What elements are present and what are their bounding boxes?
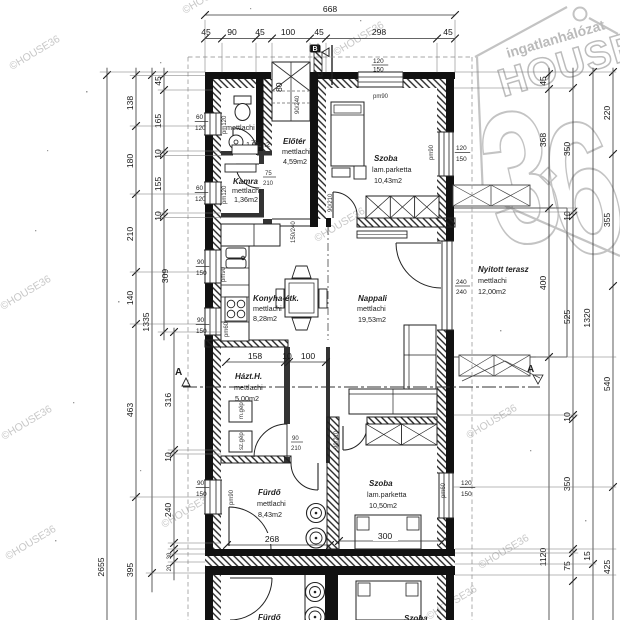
svg-text:150: 150 (196, 270, 207, 277)
svg-text:10: 10 (153, 149, 163, 159)
svg-text:mettlachi: mettlachi (253, 304, 282, 313)
svg-text:45: 45 (153, 76, 163, 86)
svg-text:350: 350 (562, 477, 572, 492)
svg-text:pm120: pm120 (222, 185, 228, 204)
svg-text:90: 90 (197, 480, 205, 487)
svg-text:mettlachi: mettlachi (257, 499, 286, 508)
svg-text:316: 316 (163, 393, 173, 408)
svg-text:lam.parketta: lam.parketta (372, 165, 412, 174)
svg-text:150: 150 (196, 491, 207, 498)
svg-text:210: 210 (263, 181, 274, 187)
svg-text:10,43m2: 10,43m2 (374, 176, 402, 185)
svg-text:Házt.H.: Házt.H. (235, 372, 262, 381)
svg-text:pm90: pm90 (229, 489, 235, 505)
svg-text:350: 350 (562, 142, 572, 157)
svg-text:20: 20 (167, 564, 173, 571)
svg-text:120: 120 (195, 196, 206, 203)
svg-text:525: 525 (562, 310, 572, 325)
svg-text:Előtér: Előtér (283, 137, 307, 146)
svg-text:15: 15 (582, 551, 592, 561)
svg-text:10: 10 (282, 351, 292, 361)
svg-text:90: 90 (227, 27, 237, 37)
svg-text:mettlachi: mettlachi (357, 304, 386, 313)
svg-text:45: 45 (443, 27, 453, 37)
svg-text:45: 45 (255, 27, 265, 37)
svg-text:8,43m2: 8,43m2 (258, 510, 282, 519)
svg-text:Fürdő: Fürdő (258, 613, 282, 620)
svg-text:pm90: pm90 (221, 266, 227, 282)
svg-text:Szoba: Szoba (404, 614, 428, 620)
svg-text:75: 75 (562, 561, 572, 571)
svg-text:mettlachi: mettlachi (234, 383, 263, 392)
svg-text:pm60: pm60 (441, 482, 447, 498)
svg-text:90: 90 (197, 317, 205, 324)
svg-text:10,50m2: 10,50m2 (369, 501, 397, 510)
svg-text:300: 300 (378, 531, 393, 541)
svg-text:90/210: 90/210 (334, 430, 340, 449)
svg-text:lam.parketta: lam.parketta (367, 490, 407, 499)
svg-text:425: 425 (602, 560, 612, 575)
svg-text:pm90: pm90 (373, 94, 389, 100)
svg-text:90: 90 (197, 259, 205, 266)
svg-text:12,00m2: 12,00m2 (478, 287, 506, 296)
svg-text:298: 298 (372, 27, 387, 37)
svg-text:1320: 1320 (582, 308, 592, 327)
svg-text:45: 45 (201, 27, 211, 37)
svg-text:368: 368 (538, 133, 548, 148)
svg-text:120: 120 (195, 125, 206, 132)
svg-text:A: A (175, 367, 182, 378)
svg-text:mettlachi: mettlachi (232, 186, 261, 195)
svg-text:240: 240 (456, 279, 467, 286)
svg-text:1120: 1120 (538, 548, 548, 567)
svg-text:60: 60 (196, 114, 204, 121)
svg-text:138: 138 (125, 96, 135, 111)
svg-text:10: 10 (153, 211, 163, 221)
svg-text:355: 355 (602, 213, 612, 228)
svg-text:668: 668 (323, 4, 338, 14)
svg-text:150: 150 (456, 156, 467, 163)
svg-text:120: 120 (461, 480, 472, 487)
svg-text:Szoba: Szoba (374, 154, 398, 163)
svg-text:158: 158 (248, 351, 263, 361)
svg-text:80: 80 (274, 82, 284, 92)
svg-text:268: 268 (265, 534, 280, 544)
svg-text:10: 10 (562, 412, 572, 422)
svg-text:240: 240 (163, 503, 173, 518)
svg-text:155: 155 (153, 177, 163, 192)
svg-text:Nyitott terasz: Nyitott terasz (478, 265, 529, 274)
svg-text:120: 120 (456, 145, 467, 152)
svg-text:150: 150 (373, 67, 384, 74)
svg-text:19,53m2: 19,53m2 (358, 315, 386, 324)
svg-text:B: B (312, 46, 317, 53)
svg-text:100: 100 (281, 27, 296, 37)
svg-text:mettlachi: mettlachi (282, 147, 311, 156)
svg-text:Konyha-étk.: Konyha-étk. (253, 294, 299, 303)
svg-text:60: 60 (196, 185, 204, 192)
svg-text:100: 100 (301, 351, 316, 361)
svg-text:Nappali: Nappali (358, 294, 388, 303)
svg-text:10: 10 (163, 452, 173, 462)
svg-text:220: 220 (602, 106, 612, 121)
svg-text:540: 540 (602, 377, 612, 392)
svg-text:210: 210 (291, 446, 302, 452)
svg-text:400: 400 (538, 276, 548, 291)
svg-text:150: 150 (461, 491, 472, 498)
svg-text:Kamra: Kamra (233, 177, 258, 186)
svg-text:pm90: pm90 (429, 144, 435, 160)
svg-text:Fürdő: Fürdő (258, 488, 282, 497)
svg-text:90/210: 90/210 (328, 193, 334, 212)
svg-text:210: 210 (125, 227, 135, 242)
svg-text:395: 395 (125, 563, 135, 578)
svg-text:140: 140 (125, 291, 135, 306)
svg-text:4,59m2: 4,59m2 (283, 157, 307, 166)
svg-text:90: 90 (292, 436, 299, 442)
svg-text:30: 30 (167, 552, 173, 559)
svg-text:150: 150 (196, 328, 207, 335)
svg-text:pm120: pm120 (222, 115, 228, 134)
svg-text:120: 120 (373, 58, 384, 65)
svg-text:2655: 2655 (96, 557, 106, 576)
svg-text:180: 180 (125, 154, 135, 169)
svg-text:m.gép: m.gép (239, 402, 245, 419)
svg-text:sz.gép: sz.gép (239, 432, 245, 450)
svg-text:463: 463 (125, 403, 135, 418)
svg-text:mettlachi: mettlachi (226, 123, 255, 132)
svg-text:309: 309 (160, 269, 170, 284)
svg-text:45: 45 (314, 27, 324, 37)
svg-text:8,28m2: 8,28m2 (253, 314, 277, 323)
svg-text:mettlachi: mettlachi (478, 276, 507, 285)
svg-text:45: 45 (538, 76, 548, 86)
svg-text:1,36m2: 1,36m2 (234, 195, 258, 204)
svg-text:90/240: 90/240 (295, 95, 301, 114)
svg-text:pm60: pm60 (224, 321, 230, 337)
svg-text:1335: 1335 (141, 312, 151, 331)
svg-text:Szoba: Szoba (369, 479, 393, 488)
svg-text:75: 75 (265, 171, 272, 177)
svg-text:10: 10 (562, 211, 572, 221)
svg-text:240: 240 (456, 289, 467, 296)
svg-text:5,00m2: 5,00m2 (235, 394, 259, 403)
svg-text:150/240: 150/240 (291, 221, 297, 243)
